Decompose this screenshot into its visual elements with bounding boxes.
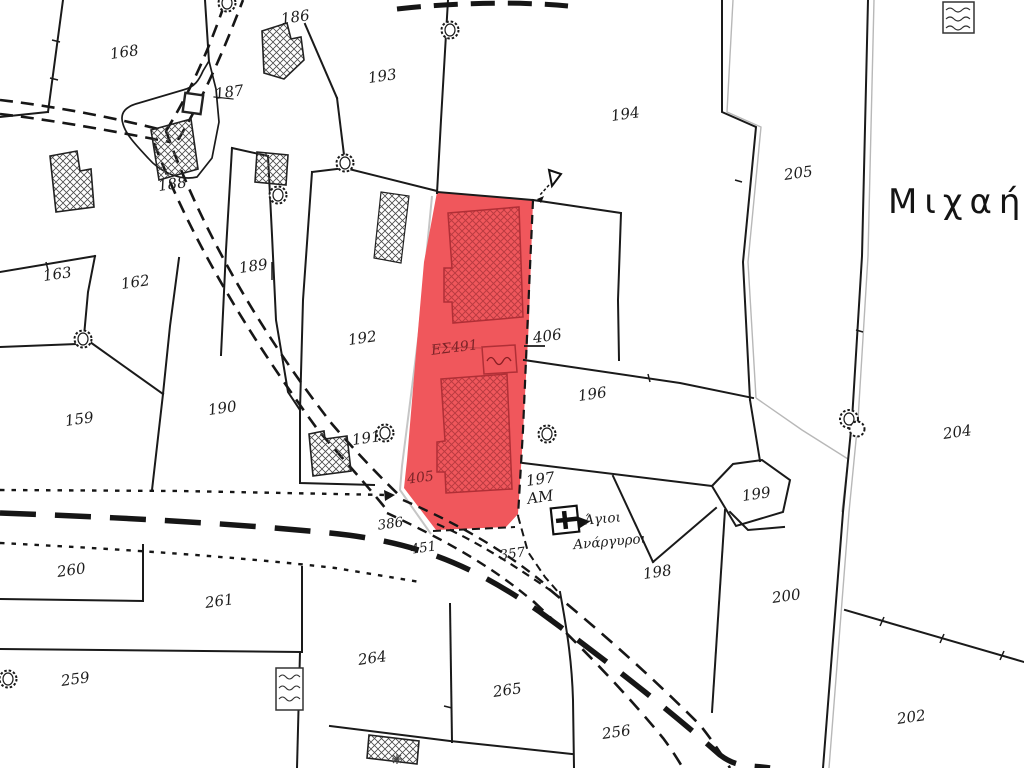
- building-hatched: [151, 119, 198, 180]
- cadastral-map: 1681861871881891931942051631621591901921…: [0, 0, 1024, 768]
- water-feature-icon: [276, 668, 303, 710]
- building-outline: [183, 93, 203, 114]
- label-Άγιοι: Άγιοι: [582, 509, 622, 528]
- building-hatched: [255, 152, 288, 185]
- building-hatched: [367, 735, 419, 764]
- highlighted-building-south: [437, 374, 512, 493]
- map-canvas: 1681861871881891931942051631621591901921…: [0, 0, 1024, 768]
- tree-asterisk-icon: [392, 754, 402, 764]
- highlighted-building-north: [444, 207, 523, 323]
- building-hatched: [309, 431, 351, 476]
- label-405: 405: [405, 468, 435, 487]
- water-feature-icon: [943, 2, 974, 33]
- label-Μιχαήλη: Μιχαήλη: [888, 182, 1024, 222]
